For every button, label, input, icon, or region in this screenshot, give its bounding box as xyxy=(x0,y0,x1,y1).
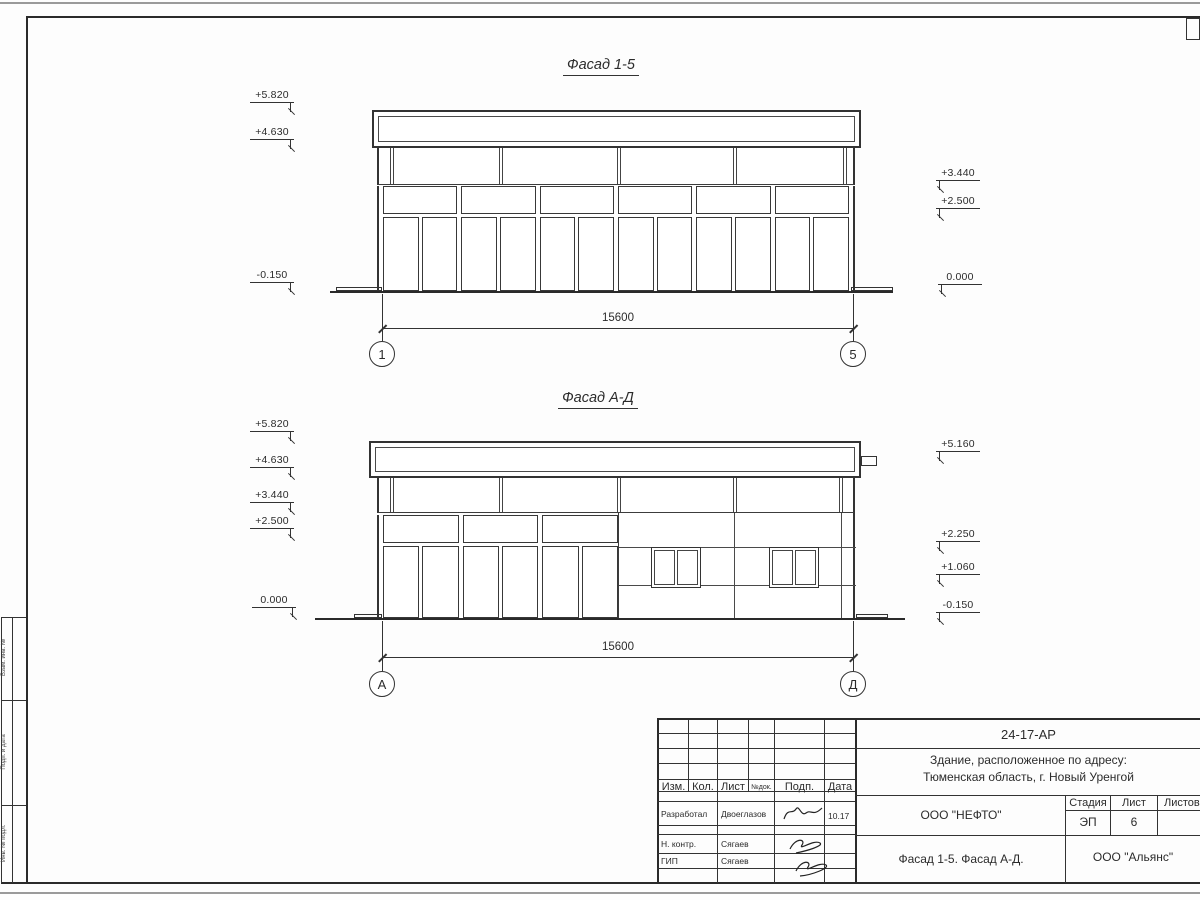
glazing-bay xyxy=(775,186,849,291)
elevation-arrow-icon xyxy=(939,541,940,551)
row-name: Сягаев xyxy=(721,856,749,866)
column-line xyxy=(617,478,621,512)
ground-line xyxy=(330,291,893,293)
column-line xyxy=(733,148,737,184)
elevation-arrow-icon xyxy=(290,102,291,112)
elevation-mark: +5.820 xyxy=(250,418,294,432)
window-pane xyxy=(795,550,816,585)
elevation-arrow-icon xyxy=(939,451,940,461)
elevation-mark: -0.150 xyxy=(250,269,294,283)
strip-label-vzam: Взам. инв. № xyxy=(1,640,7,676)
facade-1-5-fascia xyxy=(372,110,861,148)
elevation-arrow-icon xyxy=(939,612,940,622)
transom-window xyxy=(775,186,849,214)
elevation-mark: +1.060 xyxy=(936,561,980,575)
frame-left xyxy=(26,16,28,883)
frame-bottom xyxy=(1,882,1200,884)
elevation-mark: +3.440 xyxy=(250,489,294,503)
facade-A-D-fascia xyxy=(369,441,861,478)
sheet-title: Фасад 1-5. Фасад А-Д. xyxy=(857,852,1065,866)
transom-window xyxy=(542,515,618,543)
dimension-label: 15600 xyxy=(558,312,678,324)
dimension-line xyxy=(382,328,854,329)
line xyxy=(657,718,1200,720)
row-role: Н. контр. xyxy=(661,839,696,849)
small-window xyxy=(651,547,701,588)
elevation-mark: +2.250 xyxy=(936,528,980,542)
elevation-mark: +4.630 xyxy=(250,126,294,140)
facade-1-5-upper-band xyxy=(377,148,855,185)
axis-bubble-D: Д xyxy=(840,671,866,697)
col-kol: Кол. xyxy=(689,781,717,793)
row-date: 10.17 xyxy=(828,811,849,821)
ground-line xyxy=(315,618,905,620)
column-line xyxy=(499,478,503,512)
line xyxy=(855,835,1200,836)
column-line xyxy=(733,478,737,512)
page-edge-top xyxy=(0,2,1200,4)
facade-A-D-glazing xyxy=(377,515,618,618)
row-name: Сягаев xyxy=(721,839,749,849)
window-panel xyxy=(500,217,536,291)
window-panel xyxy=(540,217,576,291)
line xyxy=(657,779,855,780)
row-name: Двоеглазов xyxy=(721,809,766,819)
elevation-arrow-icon xyxy=(290,528,291,538)
elevation-mark: +2.500 xyxy=(250,515,294,529)
window-panel xyxy=(813,217,849,291)
glazing-bay xyxy=(383,186,457,291)
elevation-arrow-icon xyxy=(290,139,291,149)
elevation-mark: +5.160 xyxy=(936,438,980,452)
window-pane xyxy=(772,550,793,585)
line xyxy=(12,617,13,883)
elevation-arrow-icon xyxy=(292,607,293,617)
frame-top xyxy=(26,16,1200,18)
window-panel xyxy=(461,217,497,291)
facade-A-D-solid-wall xyxy=(618,513,855,618)
glazing-bay xyxy=(618,186,692,291)
extension-line xyxy=(853,621,854,671)
window-panel xyxy=(696,217,732,291)
line xyxy=(1065,810,1200,811)
elevation-arrow-icon xyxy=(939,574,940,584)
window-panel xyxy=(775,217,811,291)
glazing-bay xyxy=(542,515,618,618)
stage-label: Стадия xyxy=(1066,797,1110,809)
transom-window xyxy=(383,515,459,543)
transom-window xyxy=(696,186,770,214)
elevation-mark: 0.000 xyxy=(252,594,296,608)
page-edge-bottom xyxy=(0,892,1200,894)
extension-line xyxy=(382,621,383,671)
column-line xyxy=(843,148,847,184)
project-address-line2: Тюменская область, г. Новый Уренгой xyxy=(857,770,1200,784)
line xyxy=(1,805,26,806)
column-line xyxy=(839,478,843,512)
window-pane xyxy=(654,550,675,585)
strip-label-podp: Подп. и дата xyxy=(1,734,7,770)
doc-code: 24-17-АР xyxy=(857,727,1200,742)
elevation-mark: +3.440 xyxy=(936,167,980,181)
project-address-line1: Здание, расположенное по адресу: xyxy=(857,753,1200,767)
column-line xyxy=(390,478,394,512)
line xyxy=(1,700,26,701)
facade-A-D-title: Фасад А-Д xyxy=(498,390,698,406)
facade-1-5-title: Фасад 1-5 xyxy=(501,57,701,73)
window-panel xyxy=(463,546,499,618)
glazing-bay xyxy=(696,186,770,291)
transom-window xyxy=(540,186,614,214)
elevation-arrow-icon xyxy=(939,180,940,190)
transom-window xyxy=(461,186,535,214)
col-data: Дата xyxy=(825,781,855,793)
axis-bubble-1: 1 xyxy=(369,341,395,367)
small-window xyxy=(769,547,819,588)
dimension-line xyxy=(382,657,854,658)
line xyxy=(855,795,1200,796)
sheet-label: Лист xyxy=(1111,797,1157,809)
glazing-bay xyxy=(461,186,535,291)
window-panel xyxy=(502,546,538,618)
glazing-bay xyxy=(383,515,459,618)
window-panel xyxy=(735,217,771,291)
line xyxy=(657,763,855,764)
elevation-arrow-icon xyxy=(290,282,291,292)
col-ndok: №док. xyxy=(749,784,774,791)
window-panel xyxy=(422,217,458,291)
window-panel xyxy=(383,217,419,291)
window-panel xyxy=(422,546,458,618)
line xyxy=(657,825,855,826)
elevation-mark: +5.820 xyxy=(250,89,294,103)
facade-1-5-glazing xyxy=(377,186,855,291)
elevation-mark: +2.500 xyxy=(936,195,980,209)
company-name: ООО "НЕФТО" xyxy=(857,808,1065,822)
axis-bubble-5: 5 xyxy=(840,341,866,367)
sheet-value: 6 xyxy=(1111,815,1157,829)
drawing-sheet: Взам. инв. № Подп. и дата Инв. № подл. Ф… xyxy=(0,0,1200,900)
extension-line xyxy=(853,294,854,341)
fascia-bracket xyxy=(861,456,877,466)
window-panel xyxy=(582,546,618,618)
col-list: Лист xyxy=(718,781,748,793)
glazing-bay xyxy=(463,515,539,618)
dimension-label: 15600 xyxy=(558,641,678,653)
window-panel xyxy=(618,217,654,291)
glazing-bay xyxy=(540,186,614,291)
corner-pilaster-line xyxy=(841,513,842,618)
stage-value: ЭП xyxy=(1066,815,1110,829)
window-panel xyxy=(657,217,693,291)
transom-window xyxy=(463,515,539,543)
column-line xyxy=(617,148,621,184)
transom-window xyxy=(383,186,457,214)
elevation-mark: +4.630 xyxy=(250,454,294,468)
elevation-arrow-icon xyxy=(290,467,291,477)
column-line xyxy=(499,148,503,184)
corner-cell xyxy=(1186,18,1200,40)
line xyxy=(748,718,749,791)
axis-bubble-A: А xyxy=(369,671,395,697)
line xyxy=(657,748,1200,749)
col-izm: Изм. xyxy=(659,781,688,793)
row-role: Разработал xyxy=(661,809,707,819)
line xyxy=(657,801,855,802)
elevation-mark: -0.150 xyxy=(936,599,980,613)
row-role: ГИП xyxy=(661,856,678,866)
elevation-arrow-icon xyxy=(939,208,940,218)
elevation-arrow-icon xyxy=(941,284,942,294)
org-name: ООО "Альянс" xyxy=(1066,850,1200,864)
elevation-mark: 0.000 xyxy=(938,271,982,285)
window-panel xyxy=(578,217,614,291)
elevation-arrow-icon xyxy=(290,502,291,512)
signature xyxy=(782,799,824,824)
strip-label-inv: Инв. № подл. xyxy=(1,826,7,862)
fascia-inner-frame xyxy=(378,116,855,142)
window-pane xyxy=(677,550,698,585)
line xyxy=(1,617,26,618)
signature xyxy=(786,835,830,880)
window-panel xyxy=(383,546,419,618)
extension-line xyxy=(382,294,383,341)
elevation-arrow-icon xyxy=(290,431,291,441)
facade-A-D-upper-band xyxy=(377,478,855,513)
fascia-inner-frame xyxy=(375,447,855,472)
sheets-label: Листов xyxy=(1158,797,1200,809)
window-panel xyxy=(542,546,578,618)
line xyxy=(657,733,855,734)
transom-window xyxy=(618,186,692,214)
wall-joint xyxy=(734,513,735,618)
col-podp: Подп. xyxy=(775,781,824,793)
column-line xyxy=(390,148,394,184)
